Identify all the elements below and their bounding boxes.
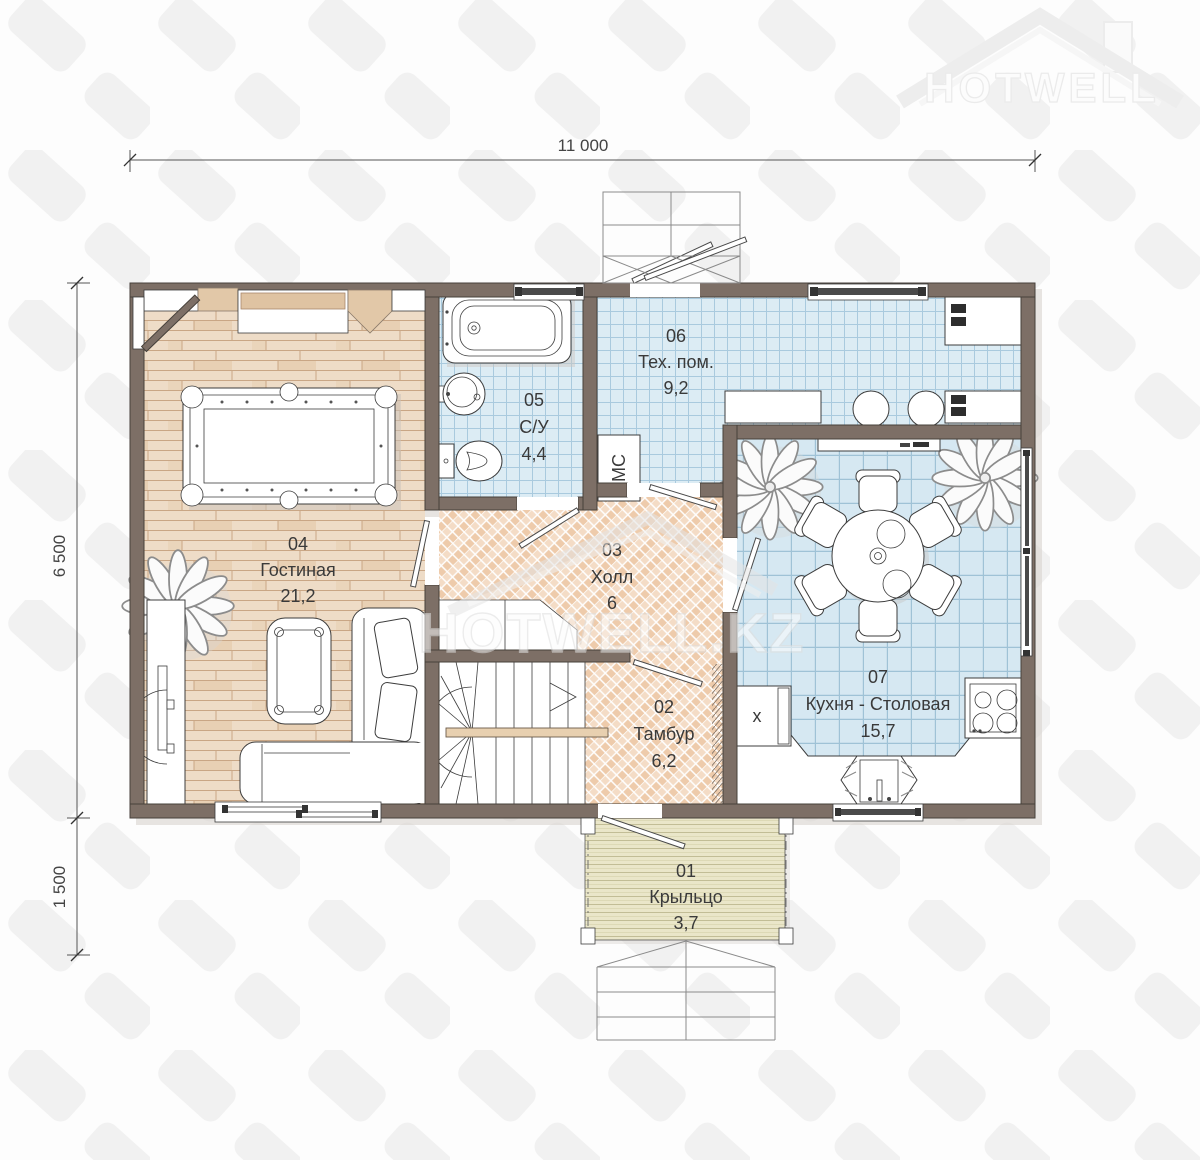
window-living-bottom: [215, 802, 381, 822]
sofa-pillow: [374, 682, 417, 742]
room-area: 3,7: [673, 913, 698, 933]
chair: [856, 470, 900, 512]
floor-plan-page: МС: [0, 0, 1200, 1160]
room-area: 9,2: [663, 378, 688, 398]
room-name: С/У: [519, 417, 549, 437]
wall-bathroom-hall-jamb: [578, 497, 583, 510]
bathtub: [443, 293, 575, 367]
tech-counter: [725, 391, 821, 423]
room-name: Холл: [591, 567, 633, 587]
room-name: Крыльцо: [649, 887, 722, 907]
room-number: 02: [654, 697, 674, 717]
washing-machine-label: МС: [609, 454, 629, 482]
logo-brand-text: HOTWELL: [924, 64, 1160, 111]
room-number: 06: [666, 326, 686, 346]
room-area: 15,7: [860, 721, 895, 741]
wall-tech-kitchen: [737, 425, 1021, 439]
porch-post: [581, 928, 595, 944]
wall-bathroom-tech: [583, 297, 597, 510]
watermark-brand-text: HOTWELL.KZ: [418, 601, 805, 664]
chair: [856, 600, 900, 642]
window-tech-top: [808, 284, 928, 300]
opening-bathroom: [517, 497, 578, 510]
wall-tech-hall-left: [597, 483, 627, 497]
room-name: Гостиная: [260, 560, 336, 580]
dimension-depth-main: 6 500: [50, 535, 69, 578]
room-area: 6,2: [651, 751, 676, 771]
room-name: Тех. пом.: [638, 352, 714, 372]
opening-tech-exterior: [630, 283, 700, 297]
room-number: 04: [288, 534, 308, 554]
porch-post: [779, 818, 793, 834]
floor-plan-svg: МС: [0, 0, 1200, 1160]
boiler-tank: [908, 391, 944, 427]
toilet: [439, 441, 502, 481]
room-number: 05: [524, 390, 544, 410]
room-number: 01: [676, 861, 696, 881]
window-kitchen-right: [1021, 448, 1032, 656]
room-number: 07: [868, 667, 888, 687]
kitchen-hood-fine-print: [900, 443, 910, 447]
wall-bathroom-hall: [439, 497, 517, 510]
porch-post: [779, 928, 793, 944]
window-sill-radiator: [241, 293, 345, 309]
fridge: x: [737, 686, 791, 746]
window-bathroom-top: [514, 284, 584, 300]
kitchen-sink: [841, 756, 917, 804]
kitchen-hood-fine-print: [913, 442, 929, 447]
boiler-tank: [853, 391, 889, 427]
window-kitchen-bottom: [833, 804, 923, 821]
tech-corner-counter: [945, 297, 1021, 345]
room-area: 4,4: [521, 444, 546, 464]
dimension-width-total: 11 000: [558, 136, 609, 155]
stove: [965, 678, 1021, 738]
opening-vestibule-porch: [598, 804, 662, 818]
wall-hall-kitchen-upper: [723, 425, 737, 538]
coffee-table: [267, 618, 331, 724]
room-name: Тамбур: [633, 724, 694, 744]
dimension-depth-porch: 1 500: [50, 866, 69, 909]
wall-living-hall-upper: [425, 297, 439, 510]
tech-side-counter: [945, 391, 1021, 423]
billiard-table: [181, 383, 397, 509]
room-area: 21,2: [280, 586, 315, 606]
room-name: Кухня - Столовая: [806, 694, 951, 714]
kitchen-hood-shelf: [818, 439, 940, 451]
wall-insulation-hatch: [712, 664, 723, 804]
stair-handrail: [446, 728, 608, 737]
fridge-mark: x: [753, 706, 762, 726]
porch-post: [581, 818, 595, 834]
wall-exterior-left: [130, 297, 144, 804]
